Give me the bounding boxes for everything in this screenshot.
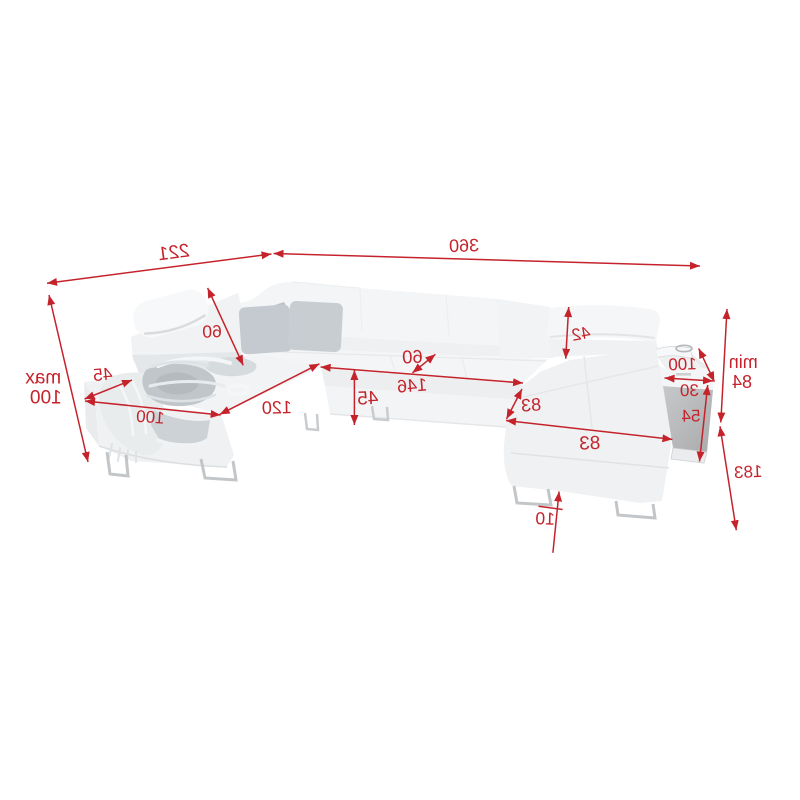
svg-text:42: 42 (570, 323, 592, 345)
svg-text:45: 45 (357, 388, 379, 410)
svg-text:30: 30 (680, 381, 699, 400)
svg-text:100: 100 (668, 354, 697, 374)
svg-text:146: 146 (396, 374, 428, 396)
svg-text:83: 83 (579, 433, 601, 455)
svg-text:100: 100 (136, 407, 166, 428)
svg-text:60: 60 (202, 321, 222, 342)
svg-text:min: min (729, 352, 758, 372)
svg-text:360: 360 (449, 235, 480, 256)
svg-text:83: 83 (520, 394, 541, 415)
svg-text:54: 54 (681, 406, 700, 425)
svg-text:84: 84 (732, 372, 752, 392)
svg-text:221: 221 (157, 240, 191, 265)
svg-text:120: 120 (262, 397, 293, 418)
svg-text:10: 10 (535, 508, 555, 529)
svg-text:60: 60 (402, 345, 424, 367)
svg-text:100: 100 (30, 388, 62, 409)
svg-text:45: 45 (92, 363, 113, 385)
svg-text:183: 183 (734, 462, 763, 482)
svg-text:max: max (25, 367, 61, 388)
